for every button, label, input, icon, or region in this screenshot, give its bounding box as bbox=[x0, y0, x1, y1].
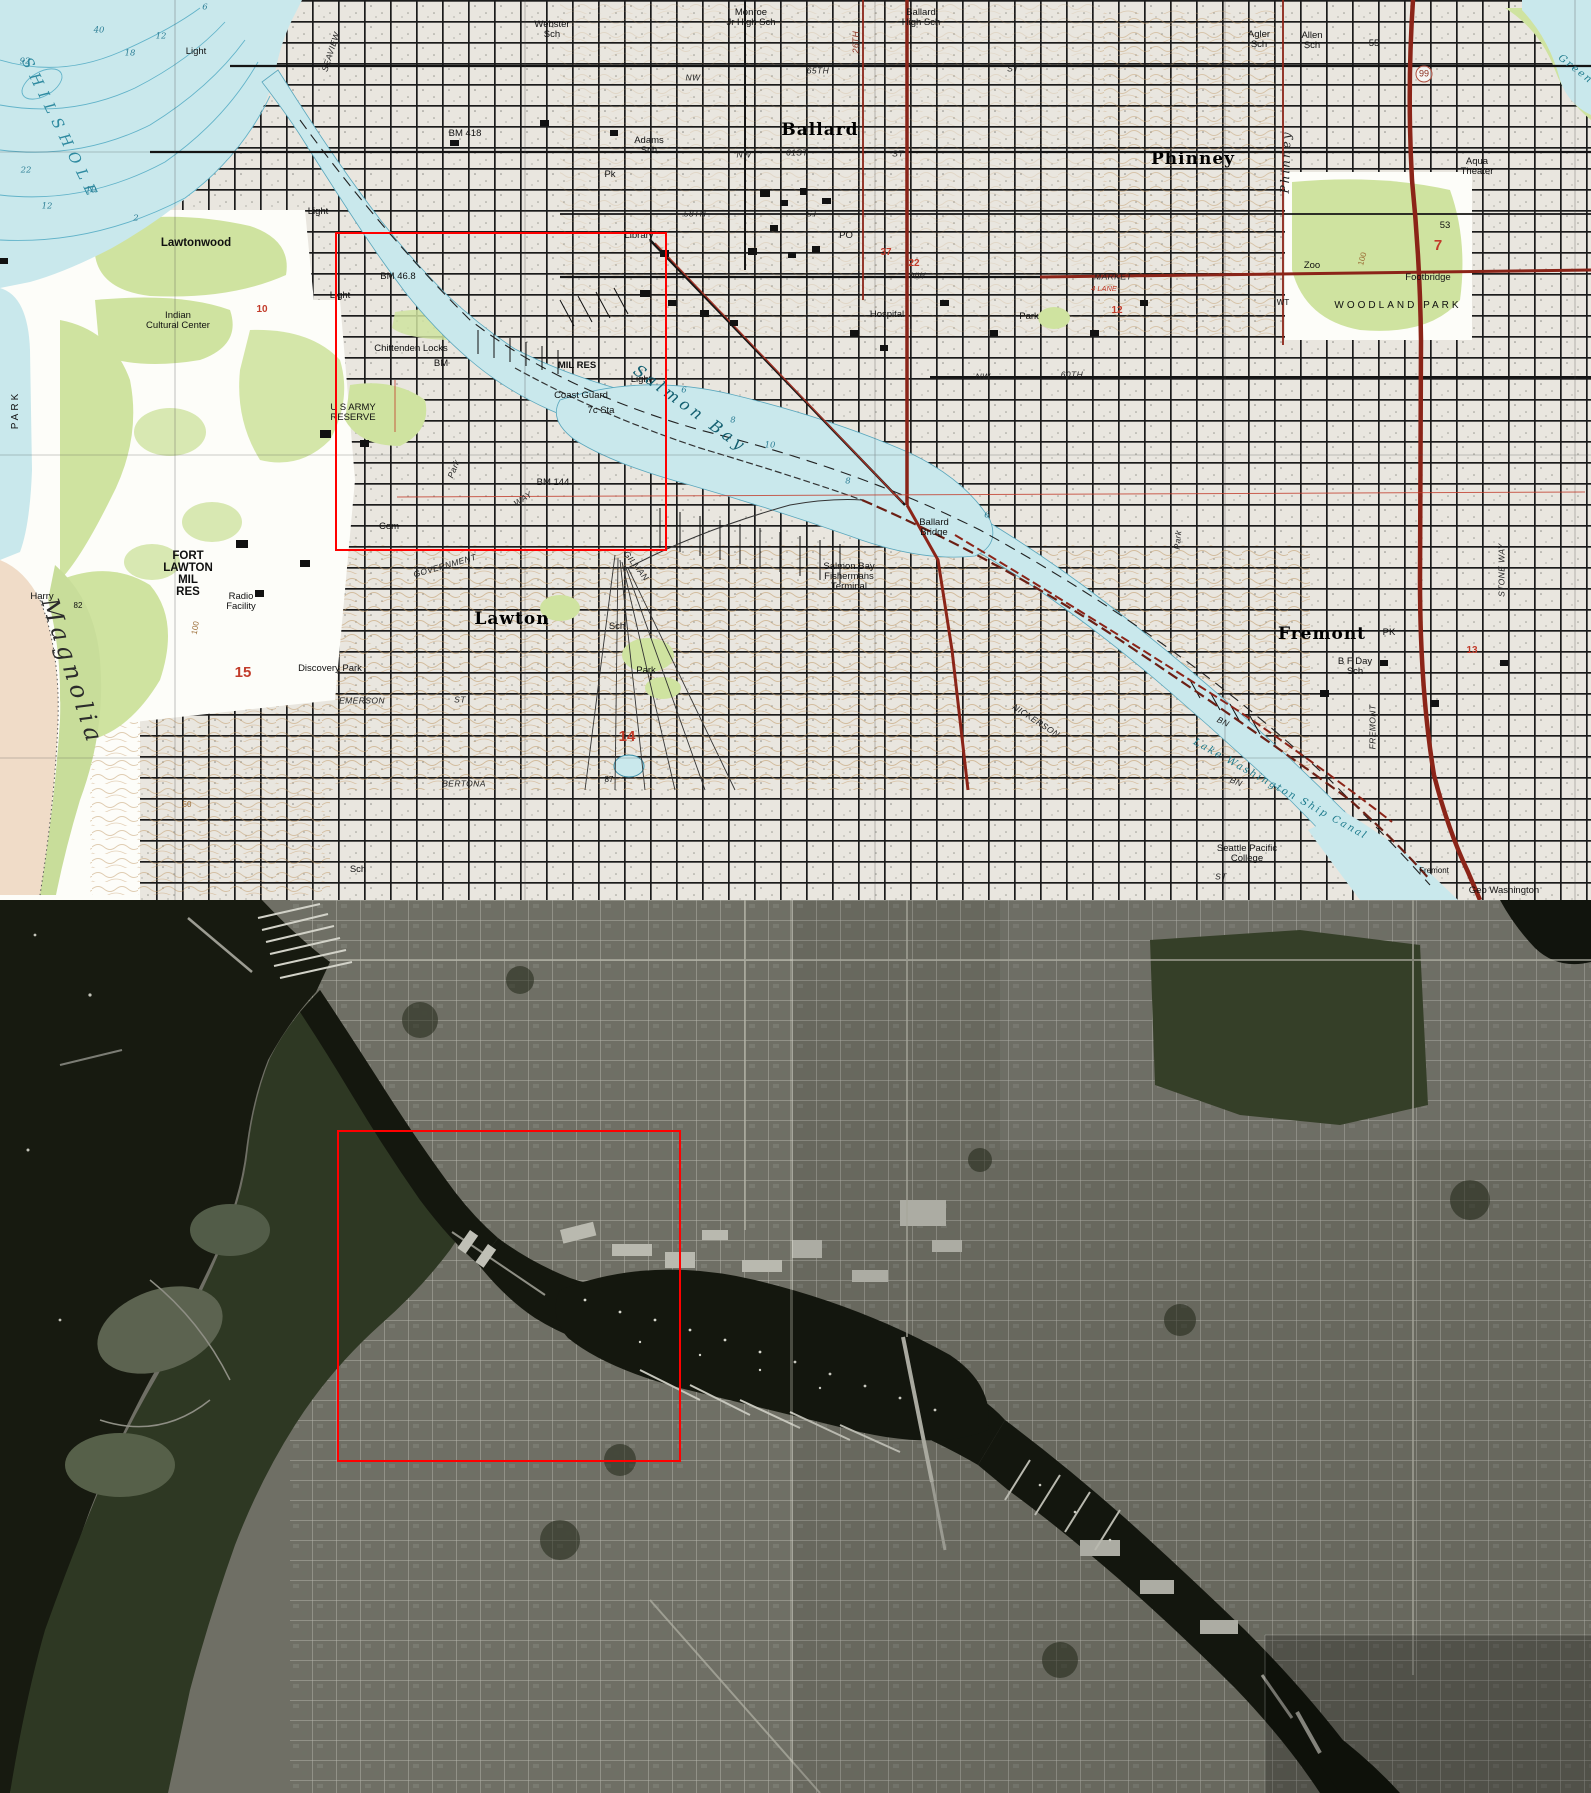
aerial-basemap bbox=[0, 900, 1591, 1793]
topo-basemap bbox=[0, 0, 1591, 900]
aerial-photo-panel bbox=[0, 900, 1591, 1793]
photo-seams bbox=[790, 900, 1591, 1793]
topographic-map-panel: LightSEAVIEWWebster SchMonroe Jr High Sc… bbox=[0, 0, 1591, 900]
map-comparison-image: LightSEAVIEWWebster SchMonroe Jr High Sc… bbox=[0, 0, 1591, 1793]
